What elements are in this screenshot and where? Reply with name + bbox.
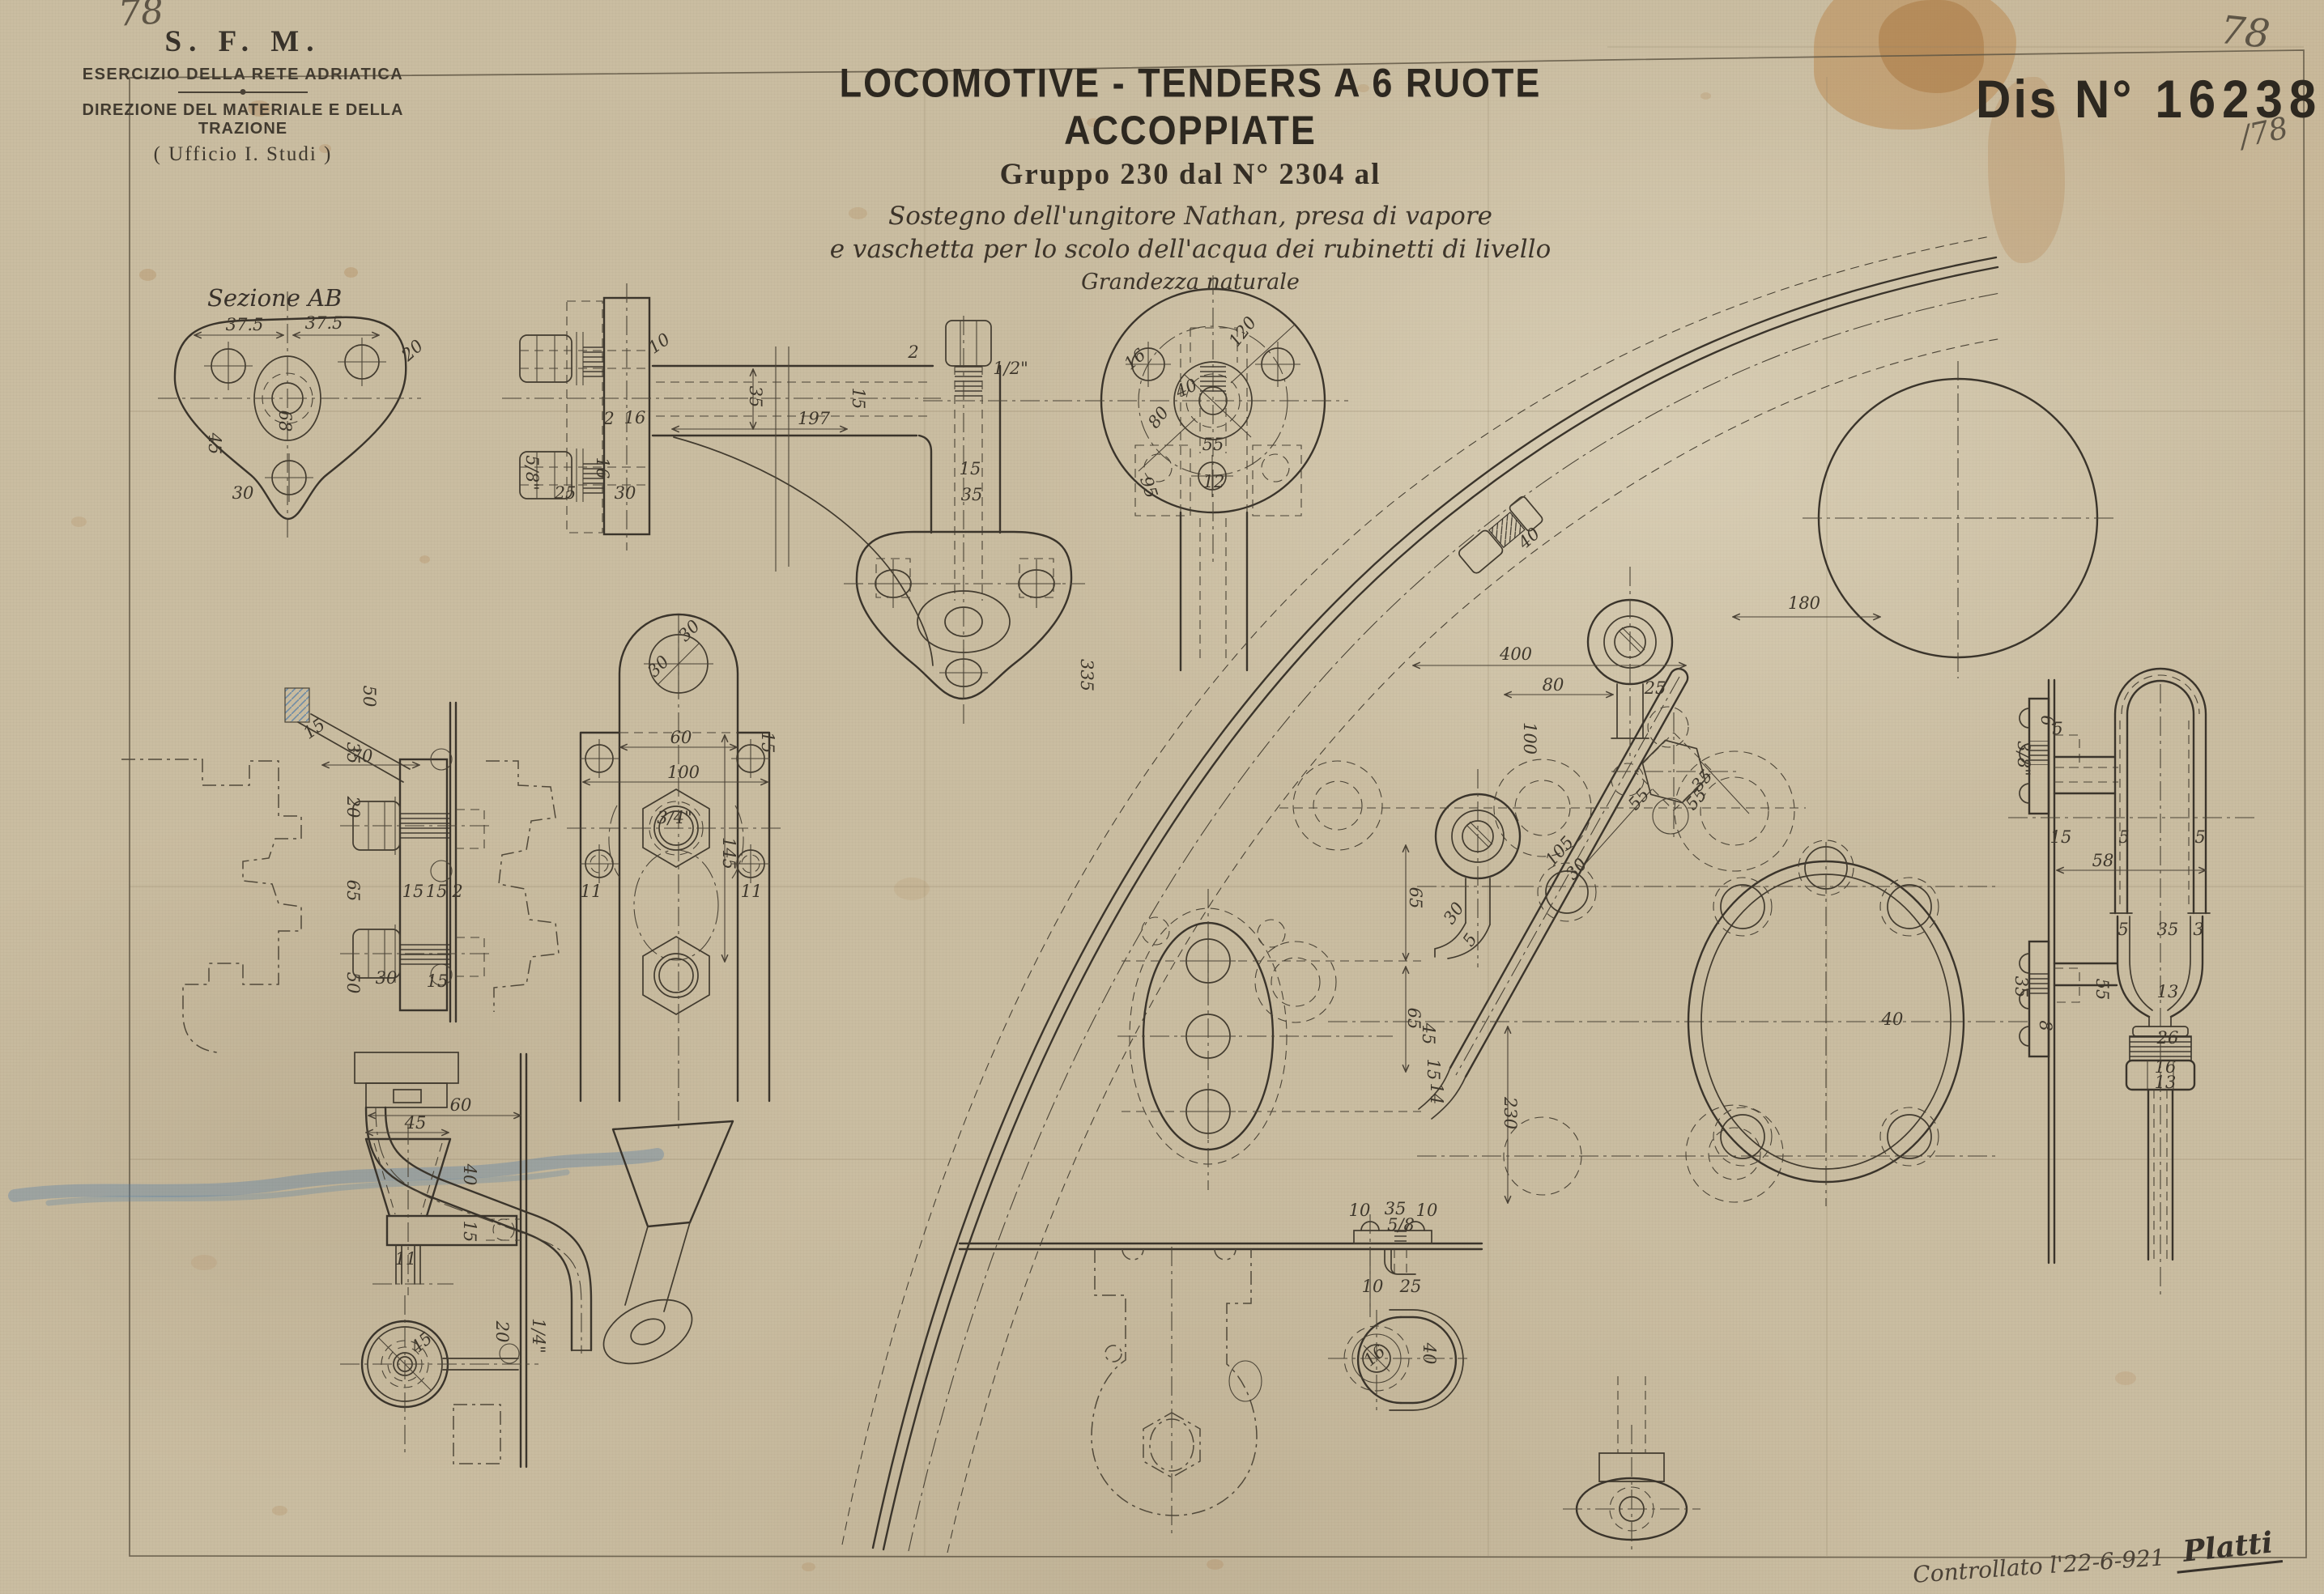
svg-text:95: 95: [1136, 474, 1161, 500]
svg-text:12: 12: [1203, 472, 1225, 491]
svg-text:80: 80: [1144, 403, 1173, 432]
svg-text:10: 10: [1416, 1201, 1438, 1220]
svg-text:16: 16: [593, 457, 612, 479]
blue-pencil-smudge: [15, 1154, 658, 1203]
svg-text:5: 5: [2118, 827, 2129, 847]
svg-text:335: 335: [1077, 659, 1096, 691]
svg-text:11: 11: [395, 1249, 417, 1269]
svg-text:2: 2: [907, 342, 918, 362]
svg-text:20: 20: [492, 1320, 512, 1343]
drawing-scale-note: Grandezza naturale: [818, 270, 1563, 295]
svg-text:20: 20: [398, 336, 428, 365]
company-header: S. F. M. ESERCIZIO DELLA RETE ADRIATICA …: [49, 24, 437, 166]
svg-text:40: 40: [1172, 375, 1200, 402]
svg-text:16: 16: [624, 408, 646, 427]
svg-text:400: 400: [1499, 644, 1532, 664]
svg-text:120: 120: [1225, 313, 1261, 351]
svg-text:65: 65: [343, 880, 363, 902]
view-oval-plate: [1117, 845, 1421, 1190]
svg-text:35: 35: [961, 485, 983, 504]
svg-text:37.5: 37.5: [226, 315, 264, 334]
svg-text:10: 10: [1362, 1277, 1384, 1296]
svg-text:45: 45: [1419, 1022, 1438, 1045]
svg-text:35: 35: [2157, 920, 2179, 939]
company-name: S. F. M.: [49, 24, 437, 59]
svg-text:30: 30: [232, 483, 254, 503]
svg-text:5: 5: [2118, 920, 2128, 939]
drawing-group: Gruppo 230 dal N° 2304 al: [818, 157, 1563, 192]
svg-text:26: 26: [2156, 1028, 2179, 1048]
view-funnel-wheel: [340, 1054, 538, 1467]
svg-text:Sezione AB: Sezione AB: [207, 284, 342, 312]
view-dome-base: [1688, 361, 2117, 1206]
svg-text:30: 30: [615, 483, 636, 503]
svg-text:100: 100: [667, 763, 700, 782]
svg-text:15: 15: [960, 459, 981, 478]
svg-text:15: 15: [427, 971, 449, 991]
svg-text:2: 2: [602, 409, 614, 428]
svg-text:11: 11: [741, 882, 763, 901]
svg-text:5: 5: [2194, 827, 2205, 847]
svg-text:25: 25: [1644, 678, 1666, 698]
svg-text:15: 15: [758, 732, 777, 754]
header-divider: [178, 91, 308, 93]
svg-text:25: 25: [554, 483, 577, 503]
view-labels: Sezione AB: [207, 284, 342, 312]
svg-text:15: 15: [849, 388, 868, 410]
svg-text:15: 15: [426, 882, 448, 901]
svg-text:3/4": 3/4": [657, 808, 692, 827]
svg-text:8: 8: [2036, 1020, 2055, 1031]
svg-text:1/4": 1/4": [529, 1318, 548, 1353]
svg-text:1/2": 1/2": [993, 359, 1028, 378]
svg-text:30: 30: [376, 968, 398, 988]
svg-text:13: 13: [2157, 982, 2179, 1001]
svg-text:40: 40: [1881, 1010, 1904, 1029]
svg-text:70: 70: [351, 746, 373, 766]
company-office: ( Ufficio I. Studi ): [49, 143, 437, 166]
svg-text:230: 230: [1500, 1096, 1520, 1129]
svg-text:68: 68: [275, 410, 295, 432]
corner-number-top-right: 78: [2218, 7, 2272, 57]
drawing-description-line2: e vaschetta per lo scolo dell'acqua dei …: [818, 233, 1563, 266]
svg-text:35: 35: [746, 386, 765, 408]
svg-text:15: 15: [1424, 1059, 1443, 1081]
svg-text:45: 45: [205, 432, 224, 455]
svg-text:15: 15: [2050, 827, 2072, 847]
view-siphon-tube: [2008, 669, 2259, 1295]
svg-text:25: 25: [1399, 1277, 1422, 1296]
svg-text:3: 3: [2193, 920, 2203, 939]
svg-text:80: 80: [1543, 675, 1564, 695]
company-line1: ESERCIZIO DELLA RETE ADRIATICA: [49, 66, 437, 84]
svg-text:100: 100: [1520, 722, 1539, 754]
svg-text:15: 15: [460, 1221, 479, 1243]
title-block: LOCOMOTIVE - TENDERS A 6 RUOTE ACCOPPIAT…: [818, 65, 1563, 295]
svg-text:13: 13: [2155, 1073, 2177, 1092]
dimension-texts: 37.537.52068453021635197152530165/8"1050…: [205, 313, 2206, 1371]
svg-text:14: 14: [1427, 1083, 1446, 1105]
svg-text:10: 10: [1349, 1201, 1371, 1220]
svg-text:40: 40: [1420, 1342, 1439, 1365]
svg-text:11: 11: [581, 882, 602, 901]
svg-text:60: 60: [450, 1095, 472, 1115]
svg-text:60: 60: [670, 728, 692, 747]
drawing-title: LOCOMOTIVE - TENDERS A 6 RUOTE ACCOPPIAT…: [818, 60, 1563, 154]
drawing-description-line1: Sostegno dell'ungitore Nathan, presa di …: [818, 200, 1563, 233]
svg-text:180: 180: [1788, 593, 1820, 613]
svg-text:30: 30: [1440, 899, 1468, 928]
svg-text:5/8: 5/8: [1387, 1215, 1415, 1235]
svg-text:45: 45: [404, 1113, 427, 1133]
svg-text:37.5: 37.5: [305, 313, 343, 333]
svg-text:58: 58: [2092, 851, 2114, 870]
view-bracket-flange: [844, 316, 1085, 729]
svg-text:55: 55: [2092, 979, 2112, 1001]
svg-text:40: 40: [460, 1163, 479, 1186]
svg-text:45: 45: [406, 1328, 436, 1358]
svg-text:15: 15: [402, 882, 424, 901]
svg-text:2: 2: [451, 882, 462, 901]
svg-text:50: 50: [360, 686, 379, 708]
drawing-sheet: Sezione AB 37.537.5206845302163519715253…: [0, 0, 2324, 1594]
svg-text:5/8": 5/8": [522, 455, 542, 490]
svg-text:35: 35: [2011, 976, 2031, 998]
svg-text:55: 55: [1202, 435, 1224, 454]
svg-text:5: 5: [2052, 719, 2062, 738]
svg-text:50: 50: [343, 972, 363, 994]
svg-text:3/8": 3/8": [2014, 741, 2033, 776]
svg-text:145: 145: [719, 837, 738, 869]
svg-text:20: 20: [343, 796, 363, 818]
svg-text:197: 197: [798, 409, 831, 428]
company-line2: DIREZIONE DEL MATERIALE E DELLA TRAZIONE: [49, 101, 437, 138]
svg-text:65: 65: [1406, 887, 1425, 909]
svg-text:30: 30: [644, 652, 673, 681]
drawing-number-label: Dis N°: [1976, 70, 2134, 130]
view-stud-bracket-side: [502, 283, 941, 665]
